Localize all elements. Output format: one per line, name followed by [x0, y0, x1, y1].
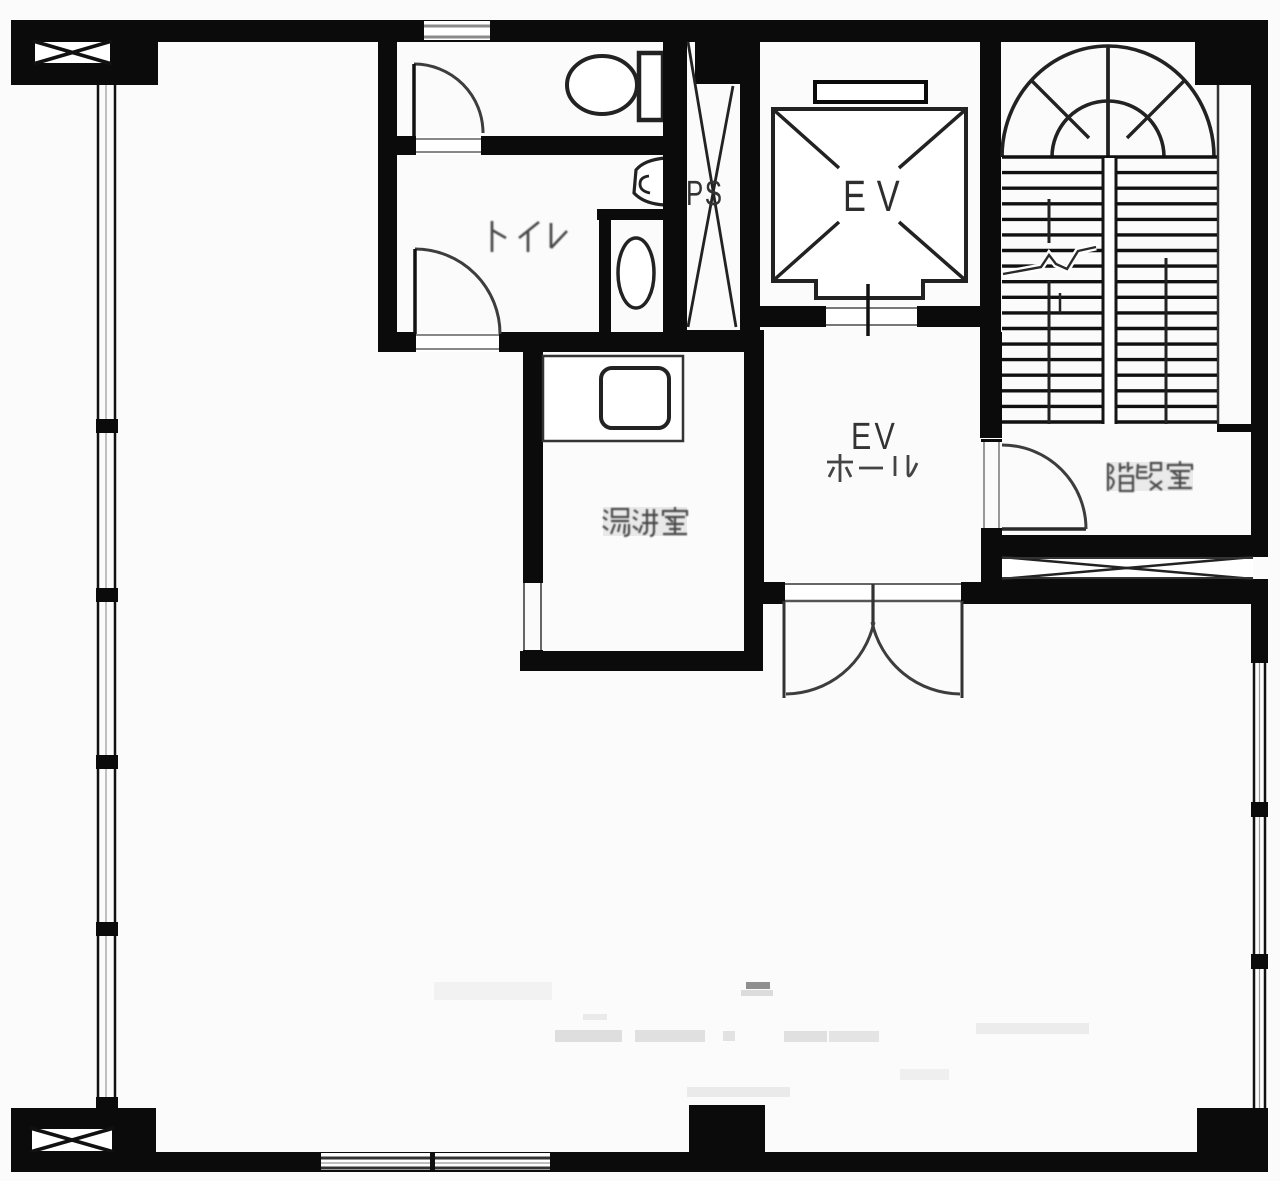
svg-text:EV: EV	[843, 172, 911, 221]
svg-text:EV: EV	[851, 416, 898, 458]
svg-text:PS: PS	[686, 174, 724, 213]
